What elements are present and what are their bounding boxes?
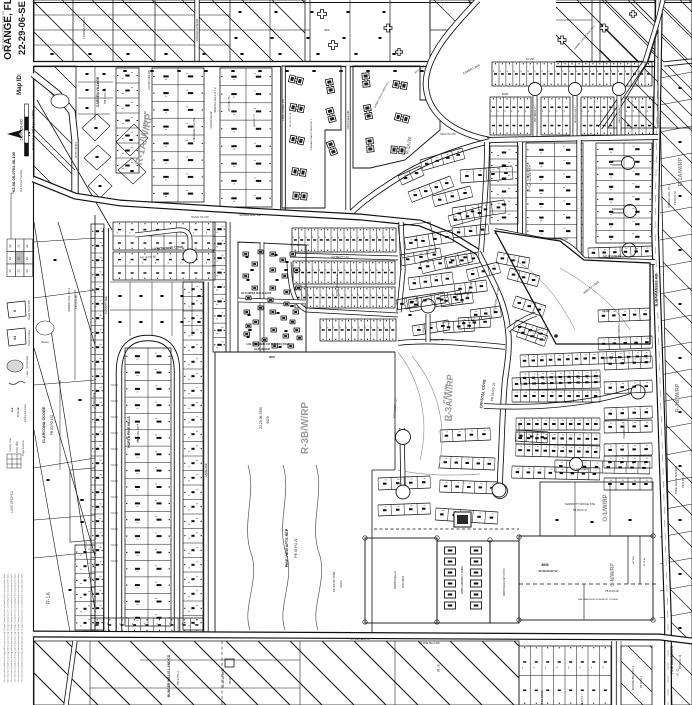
svg-text:PB GST PG 48: PB GST PG 48 [290,112,292,127]
svg-text:SIGNAL HILL UT 2: SIGNAL HILL UT 2 [213,87,217,113]
svg-text:NORTH PINE HILLS: NORTH PINE HILLS [127,415,131,447]
svg-text:0010: 0010 [339,580,343,587]
svg-text:BUSTER HILL CT: BUSTER HILL CT [575,105,577,123]
svg-text:WALGREENS AT ROSEMONT VILLAGE: WALGREENS AT ROSEMONT VILLAGE [578,598,618,601]
svg-text:ROSE VILLAGE AV: ROSE VILLAGE AV [335,273,339,296]
svg-text:N PINE HILLS RD: N PINE HILLS RD [420,642,440,645]
svg-text:SENA HILL RD: SENA HILL RD [440,133,456,136]
svg-text:GW BEATTY AVE: GW BEATTY AVE [291,244,310,247]
svg-text:County Line: County Line [8,438,12,452]
svg-text:PB E PG 2: PB E PG 2 [176,671,180,685]
svg-text:P-O: P-O [675,668,680,675]
svg-text:22-29-06: 22-29-06 [644,557,646,566]
svg-text:8699: 8699 [541,563,548,567]
svg-text:R-3: R-3 [436,664,441,672]
svg-text:22-29-06-7059: 22-29-06-7059 [259,407,263,429]
svg-text:PB 30 PG 152: PB 30 PG 152 [50,415,54,436]
svg-text:PB 8 PG 133: PB 8 PG 133 [681,472,685,488]
svg-text:22-29-06-9148: 22-29-06-9148 [254,348,270,351]
svg-text:Page Extents: Page Extents [21,440,25,456]
svg-text:CASSITY AVE: CASSITY AVE [93,392,96,407]
svg-text:8600: 8600 [324,29,330,32]
svg-text:22-29-06-8844: 22-29-06-8844 [221,668,225,687]
svg-text:MONTICELLO APTS PH 2: MONTICELLO APTS PH 2 [503,568,506,596]
svg-text:Parcel Number: Parcel Number [28,330,31,346]
svg-text:22-29-06-7059: 22-29-06-7059 [332,572,336,593]
svg-text:MUNGER WILLIS LAND CO: MUNGER WILLIS LAND CO [167,654,171,697]
svg-text:22: 22 [17,244,21,248]
svg-text:DOR Map: DOR Map [15,441,19,453]
svg-text:Map Production: Orange County: Map Production: Orange County GIS [2,11,5,49]
svg-text:WESTBROOK CT: WESTBROOK CT [619,320,621,339]
svg-text:Zoning boundary: Zoning boundary [24,403,27,422]
svg-text:CLARCONA OCOEE: CLARCONA OCOEE [42,406,46,443]
svg-text:LOCKSLEE DR: LOCKSLEE DR [346,111,350,130]
svg-text:5707 - 06 S 05 284 E: 5707 - 06 S 05 284 E [84,630,107,633]
svg-text:HATTERAS CT: HATTERAS CT [534,106,537,122]
svg-text:SIGNAL HILL RD: SIGNAL HILL RD [191,216,209,219]
svg-text:W PINE HEIGHTS: W PINE HEIGHTS [350,639,369,641]
svg-text:P-O-1/W/RP: P-O-1/W/RP [527,163,533,191]
svg-text:R-3B/W/RP: R-3B/W/RP [300,402,311,455]
svg-text:22: 22 [17,257,21,261]
svg-text:22: 22 [8,257,12,261]
svg-text:This map was created for plann: This map was created for planning and ta… [17,573,20,682]
svg-text:GW BEATTY AV: GW BEATTY AV [331,256,349,259]
svg-text:SENA HILL RD: SENA HILL RD [552,238,568,241]
svg-text:CASSITY AVE: CASSITY AVE [104,296,108,314]
svg-text:Simple Parcel With: Simple Parcel With [28,299,31,320]
svg-text:N HIAWASSEE RD: N HIAWASSEE RD [655,273,659,306]
svg-text:05427: 05427 [228,676,232,684]
svg-text:A-2: A-2 [10,407,14,412]
svg-text:This map was created for plann: This map was created for planning and ta… [14,573,17,682]
svg-text:ACTRA: ACTRA [632,556,635,564]
svg-text:W 7th TRNDS: W 7th TRNDS [75,142,78,158]
svg-text:PB 6 PG 52: PB 6 PG 52 [673,191,677,205]
svg-text:HAEBROOK CT: HAEBROOK CT [623,421,626,438]
svg-text:22: 22 [25,257,29,261]
svg-text:PINE VIEW APTS REP: PINE VIEW APTS REP [285,528,289,567]
svg-text:R-3B/W/RP: R-3B/W/RP [675,383,681,412]
svg-text:0020: 0020 [266,416,270,424]
svg-text:Map ID:: Map ID: [17,73,23,95]
svg-text:22: 22 [25,244,29,248]
svg-text:MONTICELLO: MONTICELLO [393,571,397,588]
svg-text:BONNIE BRAE: BONNIE BRAE [540,690,544,705]
svg-text:PB 49 PG 22: PB 49 PG 22 [294,538,298,557]
svg-text:Disney: Disney [41,341,49,344]
svg-text:R-2: R-2 [83,541,88,549]
svg-text:Orlando: Orlando [16,407,20,417]
svg-text:22: 22 [17,269,21,273]
svg-text:PB 20 PG 98: PB 20 PG 98 [605,591,619,593]
svg-text:PB R PG 7: PB R PG 7 [580,693,584,705]
svg-text:R-1A: R-1A [46,592,52,604]
svg-text:This map was created for plann: This map was created for planning and ta… [3,573,6,682]
svg-text:8100: 8100 [502,92,509,96]
svg-text:This map was created for plann: This map was created for planning and ta… [21,573,24,682]
svg-text:ROBE GARDENS CONDO: ROBE GARDENS CONDO [461,566,464,594]
svg-text:22-29-06-SE: 22-29-06-SE [17,1,28,55]
svg-text:C-N/W/RP: C-N/W/RP [610,563,616,587]
svg-text:PB 8 PG 11: PB 8 PG 11 [678,654,682,669]
svg-text:LOUGHCLOSE RD: LOUGHCLOSE RD [195,19,199,42]
svg-text:22-29-06-62 02: 22-29-06-62 02 [538,569,558,573]
svg-text:PINE HILLS ESTS: PINE HILLS ESTS [670,645,674,673]
svg-text:CHEROKEE HOLLOW: CHEROKEE HOLLOW [194,117,196,141]
svg-text:THIRKALE GARR CONDO PH 1: THIRKALE GARR CONDO PH 1 [310,118,313,151]
svg-text:22: 22 [25,269,29,273]
svg-text:Full Parcel Number: Full Parcel Number [19,170,23,192]
svg-text:LANG AVE: LANG AVE [204,463,208,477]
svg-text:SIGNAL HILL RD: SIGNAL HILL RD [239,213,261,217]
svg-text:22: 22 [8,244,12,248]
svg-text:PB 2 PG 85: PB 2 PG 85 [74,295,78,309]
svg-text:PINE HILLS MANOR: PINE HILLS MANOR [674,465,678,494]
svg-text:CALLIER RD: CALLIER RD [518,423,521,437]
svg-text:CHEROKEE AV: CHEROKEE AV [210,111,213,128]
svg-text:MARRIOTT OFFICE STE: MARRIOTT OFFICE STE [565,502,595,506]
svg-text:PB 3 PG 187: PB 3 PG 187 [136,425,140,443]
svg-text:0 100 200: 0 100 200 400 [20,119,24,140]
svg-text:LOXLEY CT: LOXLEY CT [254,113,256,126]
svg-text:LAKE APOPKA: LAKE APOPKA [10,490,14,513]
svg-text:8: 8 [13,310,17,312]
svg-text:SIGNAL HILL UT 3: SIGNAL HILL UT 3 [667,184,671,208]
svg-text:H.D. WILLIAMS CO SUB PB1 PG90: H.D. WILLIAMS CO SUB PB1 PG90 [247,342,290,346]
svg-text:8834: 8834 [269,355,275,359]
svg-text:GARDEN VILLAGE: GARDEN VILLAGE [96,76,100,107]
svg-text:CASTLEGENA CT: CASTLEGENA CT [618,104,621,123]
svg-text:This map was created for plann: This map was created for planning and ta… [10,573,13,682]
svg-text:22: 22 [8,269,12,273]
svg-text:AVA WALCHERE: AVA WALCHERE [571,468,589,471]
svg-text:02-06-05-0701-06-100: 02-06-05-0701-06-100 [11,151,16,192]
svg-text:0010 8834: 0010 8834 [402,575,405,587]
svg-text:81 160: 81 160 [526,57,534,61]
svg-text:FLORIDA PIPE LN: FLORIDA PIPE LN [82,17,86,39]
svg-text:SIGNAL HILL UT 4: SIGNAL HILL UT 4 [67,288,71,312]
svg-text:PB 6 PG 78: PB 6 PG 78 [227,96,231,111]
svg-text:This map was created for plann: This map was created for planning and ta… [7,573,10,682]
svg-text:O-1/W/RP: O-1/W/RP [603,494,609,521]
svg-text:04: 04 [13,336,17,340]
svg-text:LOXHATCHEE RD: LOXHATCHEE RD [148,70,151,90]
svg-text:Lake / Hydrography: Lake / Hydrography [26,355,29,377]
svg-text:LD FLORIDA RLN 22-29-06: LD FLORIDA RLN 22-29-06 [241,292,272,295]
svg-text:PB 20 PG 11: PB 20 PG 11 [573,509,587,512]
svg-text:BISCUIT: BISCUIT [423,323,425,332]
svg-text:JAY SHOWALTER AV: JAY SHOWALTER AV [548,401,572,404]
svg-text:BONNIE BRAE UT 2: BONNIE BRAE UT 2 [631,665,635,690]
svg-text:R-1A/W/RP: R-1A/W/RP [678,157,684,186]
